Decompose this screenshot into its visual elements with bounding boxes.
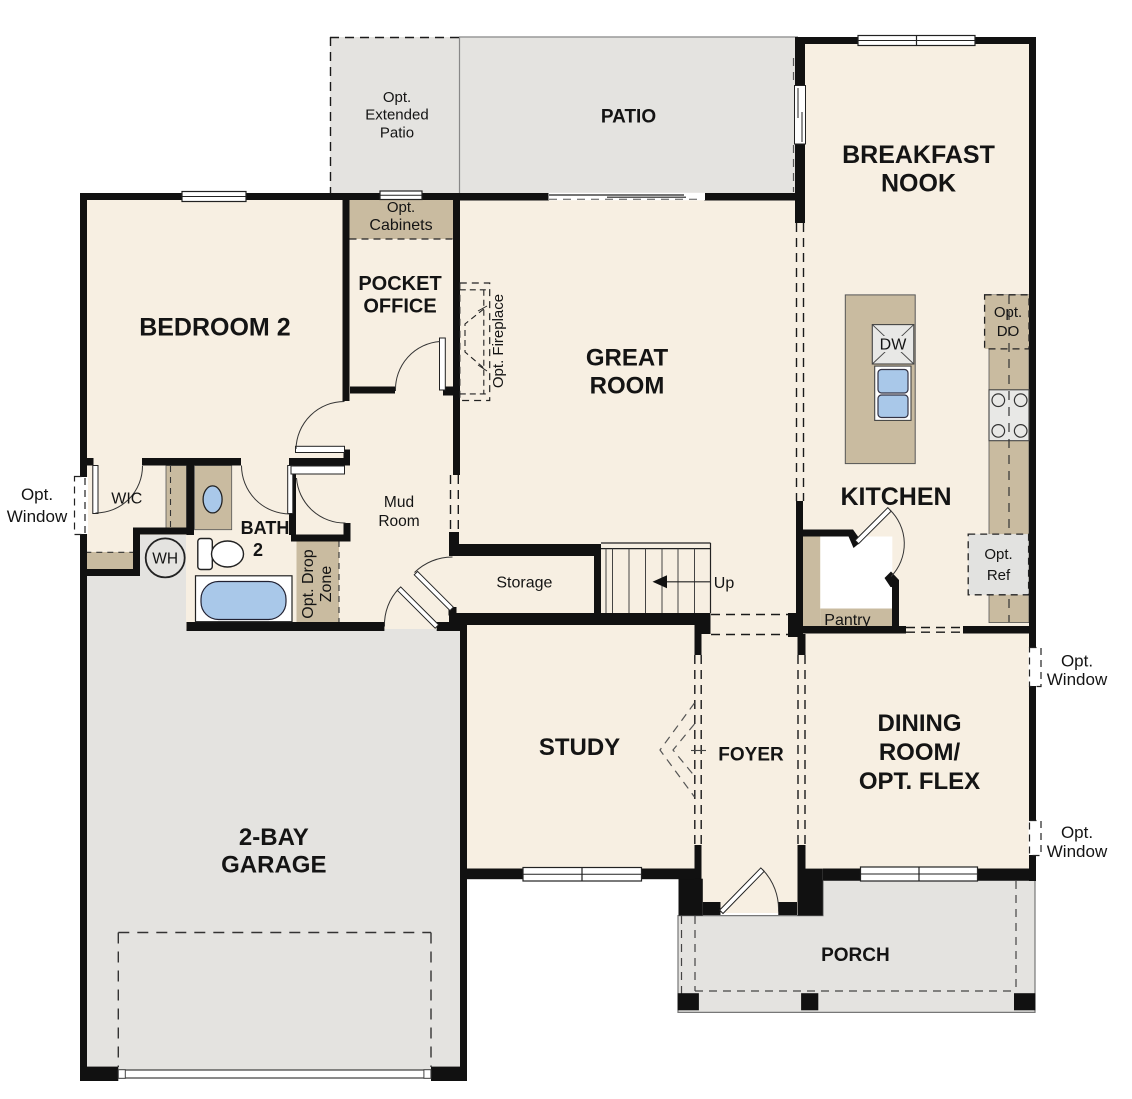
svg-text:BEDROOM 2: BEDROOM 2 (139, 314, 290, 342)
svg-text:ROOM/: ROOM/ (879, 739, 961, 766)
svg-text:NOOK: NOOK (881, 170, 956, 198)
svg-text:GREAT: GREAT (586, 344, 669, 371)
svg-text:Window: Window (1047, 842, 1108, 861)
svg-text:DO: DO (997, 323, 1020, 340)
svg-text:GARAGE: GARAGE (221, 852, 326, 879)
svg-text:Zone: Zone (318, 566, 335, 603)
svg-text:Opt.: Opt. (994, 304, 1022, 321)
svg-text:DINING: DINING (878, 710, 962, 737)
svg-text:Opt.: Opt. (1061, 652, 1093, 671)
svg-text:KITCHEN: KITCHEN (840, 483, 951, 511)
svg-text:POCKET: POCKET (358, 273, 441, 295)
svg-text:Opt.: Opt. (1061, 823, 1093, 842)
svg-text:FOYER: FOYER (718, 745, 784, 766)
svg-text:Opt. Drop: Opt. Drop (300, 549, 317, 618)
svg-text:Opt.: Opt. (383, 89, 411, 106)
svg-text:Up: Up (714, 575, 735, 592)
svg-text:2-BAY: 2-BAY (239, 824, 309, 851)
svg-text:BATH: BATH (241, 518, 290, 538)
svg-text:WH: WH (152, 551, 178, 568)
svg-text:Opt.: Opt. (21, 485, 53, 504)
svg-text:Window: Window (7, 507, 68, 526)
svg-text:WIC: WIC (111, 490, 142, 507)
svg-text:Window: Window (1047, 670, 1108, 689)
svg-text:OFFICE: OFFICE (363, 296, 436, 318)
svg-text:PORCH: PORCH (821, 945, 890, 966)
svg-text:DW: DW (880, 337, 908, 354)
svg-text:BREAKFAST: BREAKFAST (842, 141, 995, 169)
svg-text:Pantry: Pantry (824, 612, 870, 629)
svg-text:Cabinets: Cabinets (369, 217, 432, 234)
svg-text:Extended: Extended (365, 107, 428, 124)
svg-text:Patio: Patio (380, 125, 414, 142)
svg-text:Room: Room (378, 513, 419, 530)
svg-text:OPT. FLEX: OPT. FLEX (859, 768, 980, 795)
svg-text:ROOM: ROOM (590, 373, 665, 400)
svg-text:Opt.: Opt. (387, 199, 415, 216)
svg-text:Opt.: Opt. (984, 546, 1012, 563)
svg-text:Opt. Fireplace: Opt. Fireplace (490, 294, 507, 388)
svg-text:2: 2 (253, 540, 263, 560)
svg-text:STUDY: STUDY (539, 734, 620, 761)
svg-text:Storage: Storage (496, 575, 552, 592)
svg-text:Ref: Ref (987, 567, 1011, 584)
svg-text:Mud: Mud (384, 494, 414, 511)
svg-text:PATIO: PATIO (601, 107, 656, 128)
